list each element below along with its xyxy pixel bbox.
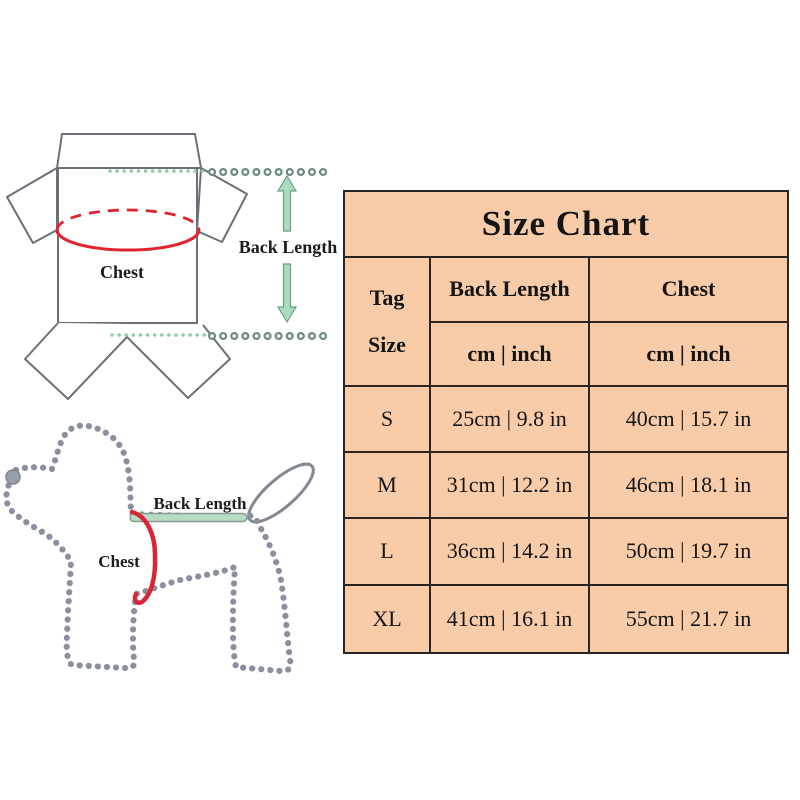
chest-cell-l: 50cm | 19.7 in [590, 519, 787, 586]
chest-header: Chest [590, 258, 787, 323]
chest-units: cm | inch [590, 323, 787, 387]
dog-nose [6, 470, 20, 484]
chest-cell-s: 40cm | 15.7 in [590, 387, 787, 453]
back-length-arrow-up [278, 176, 296, 231]
back-length-bar [130, 514, 247, 522]
dog-outline-core [6, 426, 290, 672]
tag-size-line2: Size [368, 333, 406, 357]
back-length-cell-xl: 41cm | 16.1 in [431, 586, 590, 652]
dog-chest-label: Chest [98, 552, 140, 571]
size-cell-l: L [345, 519, 431, 586]
back-length-cell-l: 36cm | 14.2 in [431, 519, 590, 586]
size-cell-xl: XL [345, 586, 431, 652]
chest-cell-m: 46cm | 18.1 in [590, 453, 787, 519]
back-length-arrow-down [278, 264, 296, 322]
size-chart-title: Size Chart [345, 192, 787, 258]
size-cell-s: S [345, 387, 431, 453]
tag-size-header: Tag Size [345, 258, 431, 387]
dog-outline-path [6, 426, 290, 672]
back-length-cell-s: 25cm | 9.8 in [431, 387, 590, 453]
garment-back-length-label: Back Length [239, 237, 338, 257]
tag-size-line1: Tag [370, 286, 405, 310]
garment-chest-label: Chest [100, 262, 144, 282]
back-length-cell-m: 31cm | 12.2 in [431, 453, 590, 519]
back-length-units: cm | inch [431, 323, 590, 387]
back-length-header: Back Length [431, 258, 590, 323]
size-chart-table: Size Chart Tag Size Back Length Chest cm… [343, 190, 789, 654]
garment-left-sleeve [7, 168, 57, 243]
garment-collar [57, 134, 201, 168]
dog-back-length-label: Back Length [153, 494, 247, 513]
dog-outline [6, 426, 290, 672]
size-cell-m: M [345, 453, 431, 519]
dog-tail [241, 456, 321, 531]
chest-cell-xl: 55cm | 21.7 in [590, 586, 787, 652]
garment-right-sleeve [197, 168, 247, 242]
